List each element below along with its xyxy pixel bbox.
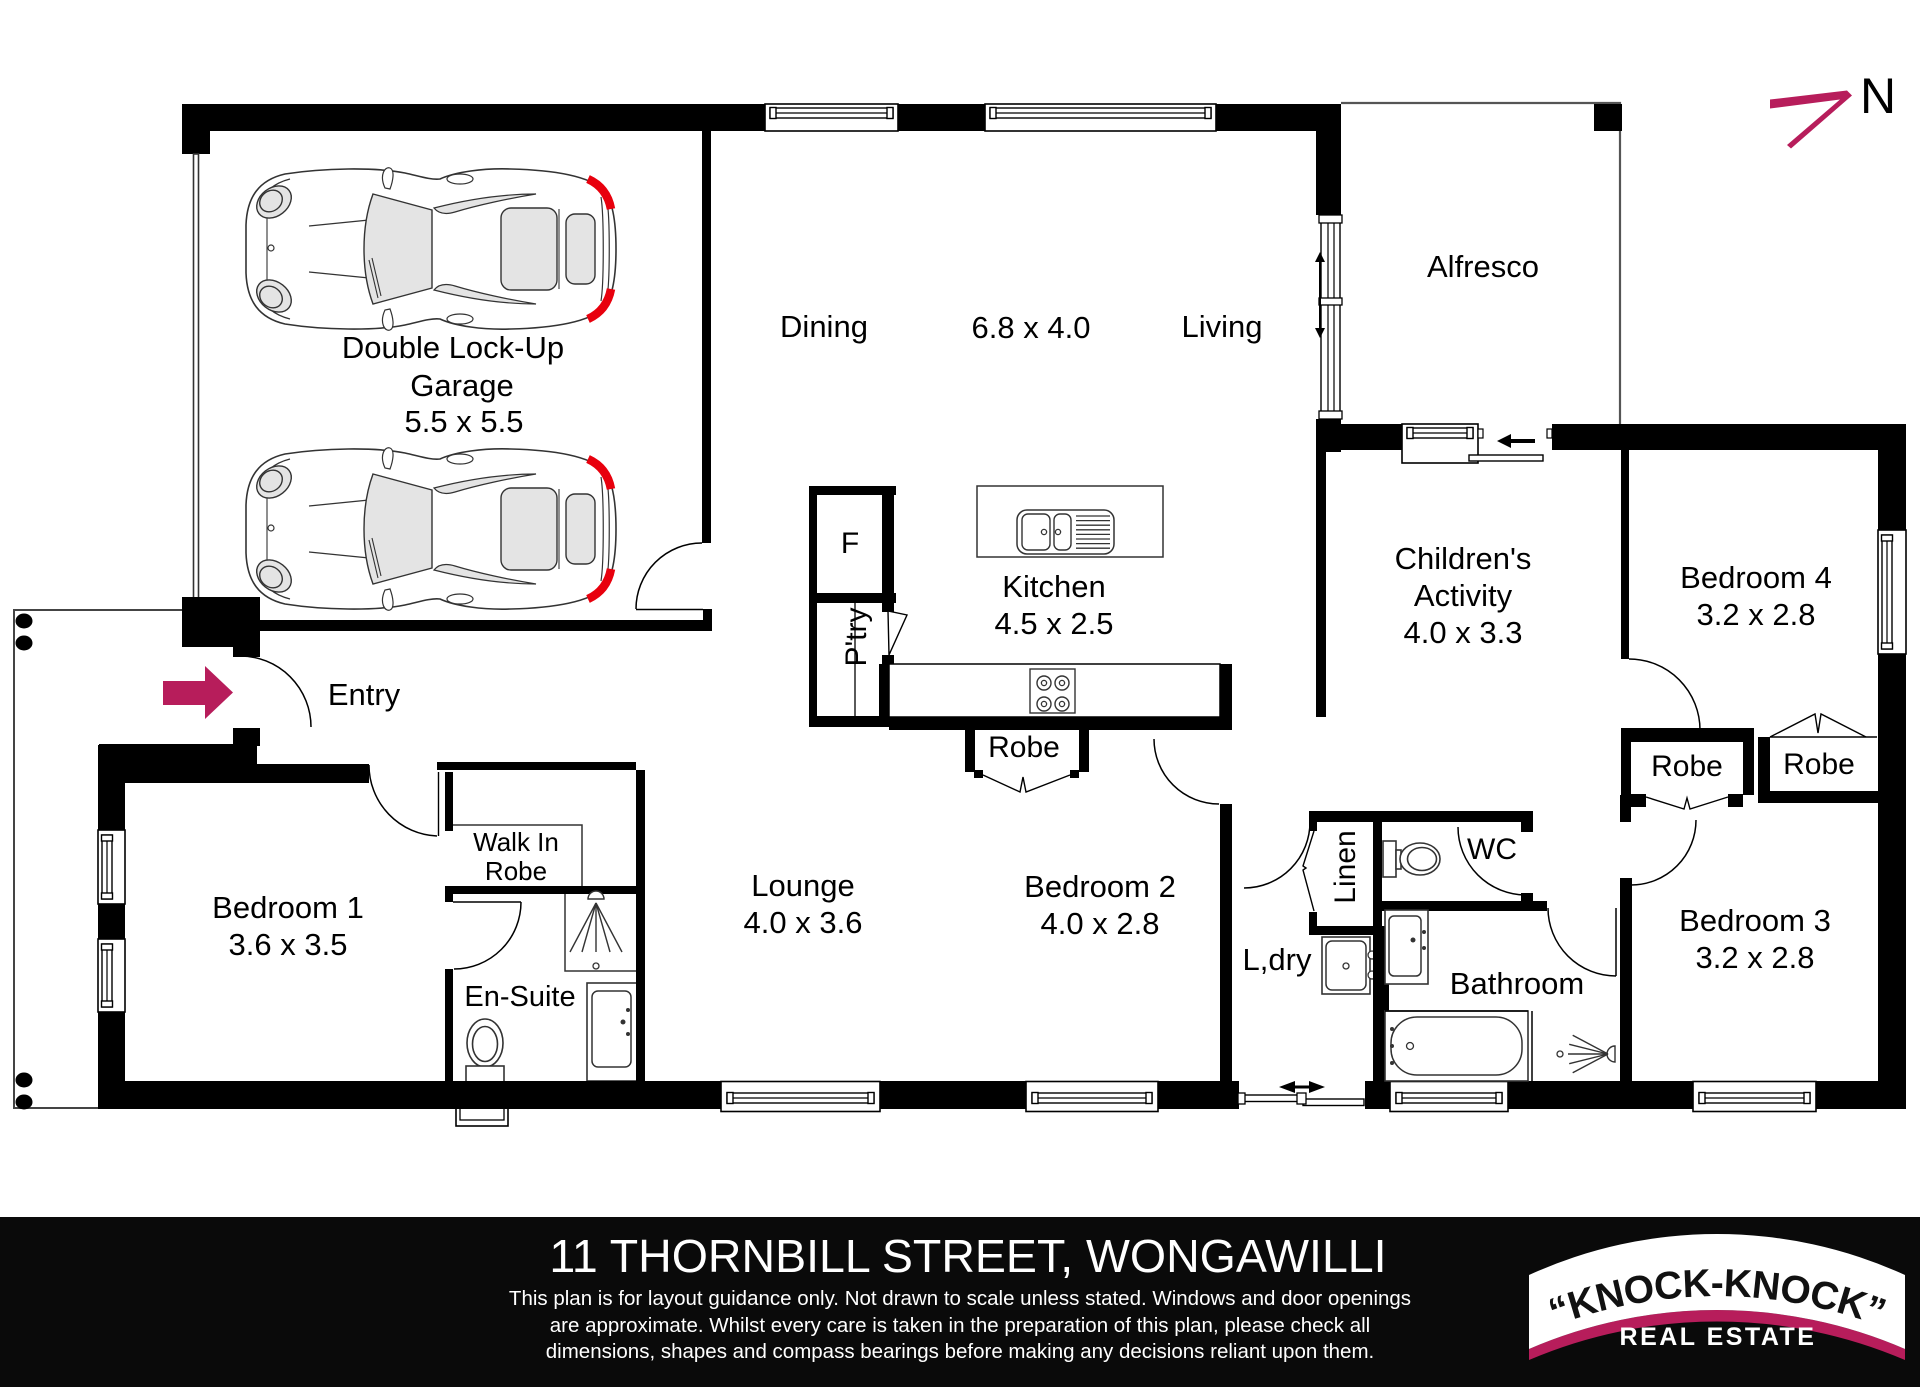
svg-text:Activity: Activity [1414,578,1513,613]
svg-text:are approximate. Whilst every: are approximate. Whilst every care is ta… [550,1314,1370,1337]
svg-text:Living: Living [1182,309,1263,344]
svg-text:Linen: Linen [1329,830,1362,903]
svg-text:4.5 x 2.5: 4.5 x 2.5 [995,606,1114,641]
svg-text:Bedroom 2: Bedroom 2 [1024,869,1176,904]
svg-text:11 THORNBILL STREET, WONGAWILL: 11 THORNBILL STREET, WONGAWILLI [549,1230,1386,1282]
svg-text:Bedroom 4: Bedroom 4 [1680,560,1832,595]
svg-text:Alfresco: Alfresco [1427,249,1539,284]
svg-text:En-Suite: En-Suite [464,981,575,1013]
svg-text:5.5 x 5.5: 5.5 x 5.5 [405,404,524,439]
svg-text:Double Lock-Up: Double Lock-Up [342,330,564,365]
svg-text:Bathroom: Bathroom [1450,966,1584,1001]
svg-text:6.8 x 4.0: 6.8 x 4.0 [972,310,1091,345]
svg-text:Bedroom 3: Bedroom 3 [1679,903,1831,938]
svg-text:Walk In: Walk In [473,827,559,857]
svg-text:4.0 x 2.8: 4.0 x 2.8 [1041,906,1160,941]
svg-text:WC: WC [1467,833,1517,866]
svg-text:dimensions, shapes and compass: dimensions, shapes and compass bearings … [546,1340,1374,1363]
svg-text:4.0 x 3.3: 4.0 x 3.3 [1404,615,1523,650]
svg-text:Entry: Entry [328,677,401,712]
svg-text:4.0 x 3.6: 4.0 x 3.6 [744,905,863,940]
svg-text:Dining: Dining [780,309,868,344]
svg-text:Robe: Robe [485,856,547,886]
svg-text:3.2 x 2.8: 3.2 x 2.8 [1696,940,1815,975]
svg-text:Lounge: Lounge [751,868,854,903]
svg-text:Robe: Robe [1651,750,1723,783]
svg-text:Bedroom 1: Bedroom 1 [212,890,364,925]
svg-text:L,dry: L,dry [1243,942,1312,977]
svg-text:3.6 x 3.5: 3.6 x 3.5 [229,927,348,962]
svg-text:F: F [841,527,859,560]
svg-text:P'try: P'try [840,607,873,666]
svg-text:Robe: Robe [988,731,1060,764]
svg-text:Children's: Children's [1395,541,1532,576]
svg-text:N: N [1860,68,1896,124]
svg-text:REAL ESTATE: REAL ESTATE [1620,1323,1817,1351]
svg-text:Garage: Garage [410,368,513,403]
svg-text:Kitchen: Kitchen [1002,569,1105,604]
svg-text:3.2 x 2.8: 3.2 x 2.8 [1697,597,1816,632]
svg-text:Robe: Robe [1783,748,1855,781]
svg-text:This plan is for layout guidan: This plan is for layout guidance only. N… [509,1287,1411,1310]
